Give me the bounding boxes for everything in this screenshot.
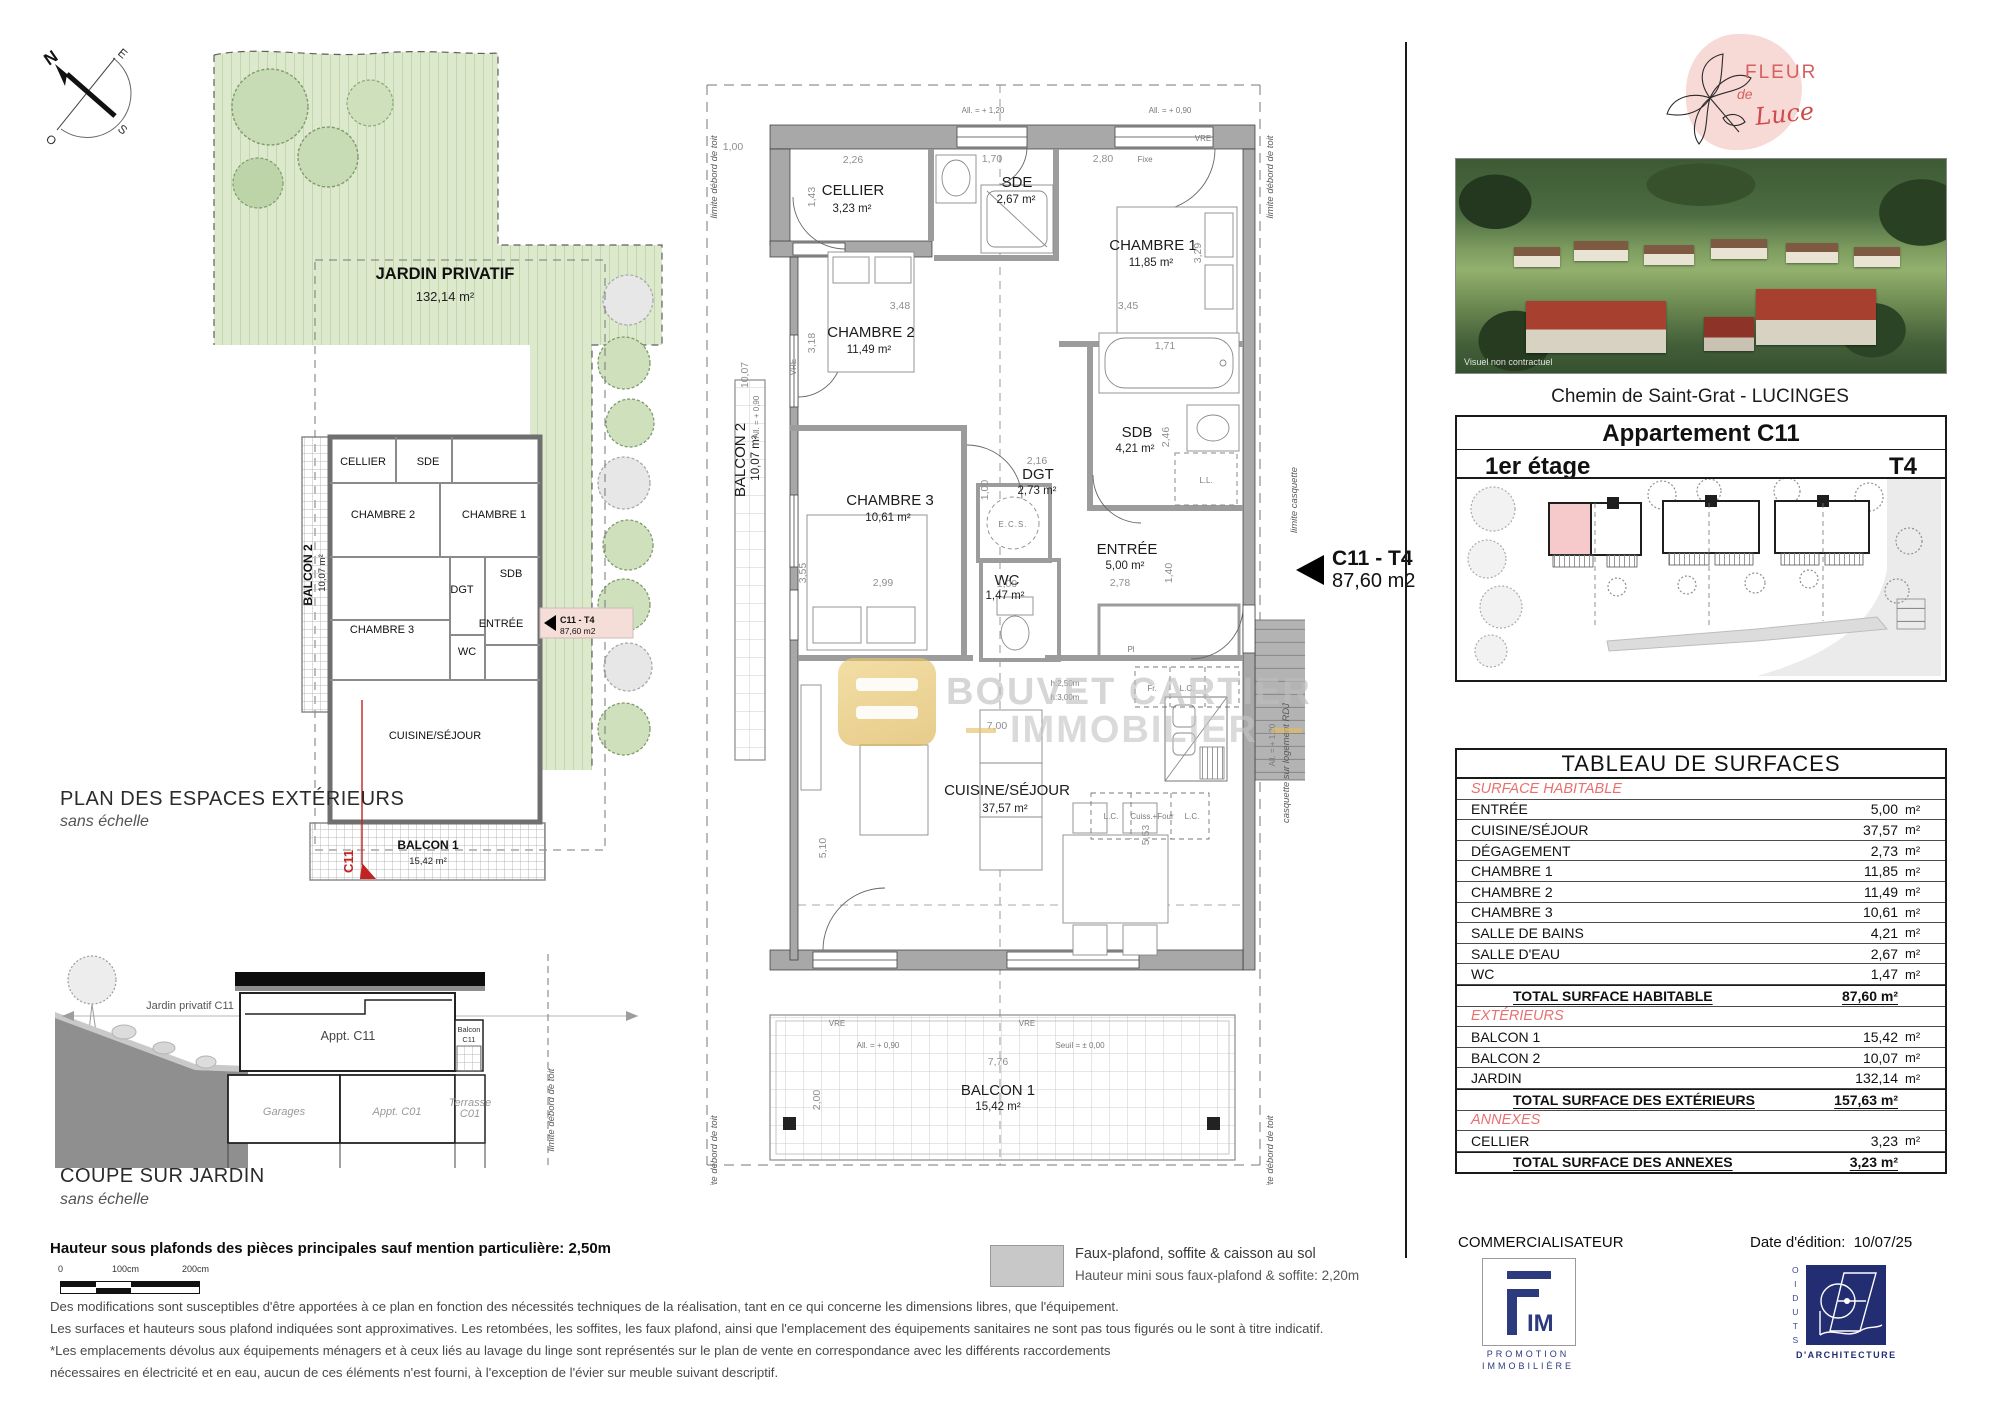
photo-disclaimer: Visuel non contractuel (1464, 357, 1552, 367)
legend-swatch (990, 1245, 1064, 1287)
fim-logo-subtitle: PROMOTION IMMOBILIÈRE (1470, 1348, 1586, 1372)
svg-text:DGT: DGT (450, 584, 474, 596)
svg-text:37,57 m²: 37,57 m² (982, 803, 1028, 815)
svg-text:CELLIER: CELLIER (340, 456, 386, 468)
svg-text:CHAMBRE 1: CHAMBRE 1 (1109, 237, 1197, 254)
project-address: Chemin de Saint-Grat - LUCINGES (1455, 386, 1945, 408)
svg-text:BALCON 1: BALCON 1 (397, 838, 459, 852)
svg-text:3,18: 3,18 (806, 333, 818, 354)
unit-callout-title: C11 - T4 (1332, 548, 1415, 570)
fim-logo: IM (1482, 1258, 1576, 1346)
svg-text:1,47 m²: 1,47 m² (986, 590, 1025, 602)
unit-callout-area: 87,60 m2 (1332, 570, 1415, 592)
svg-text:3,23 m²: 3,23 m² (833, 203, 872, 215)
svg-text:5,10: 5,10 (817, 838, 829, 859)
scale-100: 100cm (112, 1264, 139, 1274)
svg-text:WC: WC (458, 646, 476, 658)
table-row: BALCON 115,42m² (1457, 1027, 1945, 1048)
svg-text:3,55: 3,55 (797, 563, 809, 584)
table-section: ANNEXES (1457, 1111, 1945, 1132)
brand-luce: Luce (1754, 97, 1816, 131)
apartment-info-box: Appartement C11 1er étage T4 (1455, 415, 1947, 481)
table-total-row: TOTAL SURFACE HABITABLE87,60 m² (1457, 985, 1945, 1007)
compass-icon: N E S O (15, 28, 155, 153)
table-row: SALLE DE BAINS4,21m² (1457, 923, 1945, 944)
svg-text:All. = + 1,20: All. = + 1,20 (1268, 723, 1277, 766)
edition-date: Date d'édition: 10/07/25 (1750, 1234, 1912, 1251)
svg-text:C11: C11 (341, 850, 356, 873)
svg-text:VRE: VRE (829, 1019, 845, 1028)
site-plan-box (1455, 477, 1947, 682)
table-row: CHAMBRE 310,61m² (1457, 903, 1945, 924)
svg-text:limite débord de toit: limite débord de toit (1265, 135, 1276, 218)
svg-text:10,61 m²: 10,61 m² (865, 512, 911, 524)
studio-vertical-label: OIDUTS (1792, 1265, 1799, 1345)
plan-sheet: N E S O (0, 0, 2000, 1413)
svg-text:VRE: VRE (1019, 1019, 1035, 1028)
svg-text:2,78: 2,78 (1110, 577, 1131, 589)
brand-fleur: FLEUR (1745, 62, 1817, 84)
svg-text:132,14 m²: 132,14 m² (416, 289, 475, 304)
svg-text:h:2,50m: h:2,50m (1051, 679, 1080, 688)
svg-text:IM: IM (1527, 1310, 1554, 1337)
project-photo: Visuel non contractuel (1455, 158, 1947, 374)
svg-text:3,45: 3,45 (1118, 300, 1139, 312)
svg-text:1,43: 1,43 (806, 187, 818, 208)
svg-text:limite débord de toit: limite débord de toit (709, 135, 720, 218)
svg-text:10,07 m²: 10,07 m² (317, 554, 328, 592)
exterior-spaces-plan: CELLIER SDE CHAMBRE 2 CHAMBRE 1 SDB DGT … (200, 45, 670, 905)
svg-text:3,48: 3,48 (890, 300, 911, 312)
svg-text:7,76: 7,76 (988, 1056, 1009, 1068)
svg-text:Fixe: Fixe (1137, 155, 1153, 164)
exterior-plan-caption-sub: sans échelle (60, 813, 149, 831)
svg-text:limite débord de toit: limite débord de toit (709, 1115, 720, 1185)
svg-text:All. = + 1,20: All. = + 1,20 (962, 106, 1005, 115)
svg-text:BALCON 2: BALCON 2 (301, 544, 315, 606)
svg-text:2,80: 2,80 (1093, 153, 1114, 165)
table-row: CELLIER3,23m² (1457, 1131, 1945, 1152)
svg-text:2,73 m²: 2,73 m² (1018, 485, 1057, 497)
legend-line2: Hauteur mini sous faux-plafond & soffite… (1075, 1268, 1359, 1283)
garden-trees-column (598, 275, 654, 755)
svg-text:1,00: 1,00 (979, 480, 991, 501)
svg-text:BALCON 2: BALCON 2 (732, 423, 749, 497)
apartment-outline (302, 437, 545, 880)
svg-text:C11: C11 (462, 1035, 475, 1044)
svg-text:E: E (115, 46, 130, 62)
svg-text:Jardin privatif C11: Jardin privatif C11 (146, 1000, 234, 1012)
svg-text:All. = + 0,90: All. = + 0,90 (752, 395, 761, 438)
table-row: BALCON 210,07m² (1457, 1048, 1945, 1069)
scale-200: 200cm (182, 1264, 209, 1274)
svg-text:limite débord de toit: limite débord de toit (1265, 1115, 1276, 1185)
svg-text:S: S (115, 122, 130, 138)
svg-text:CELLIER: CELLIER (822, 182, 885, 199)
ceiling-height-note: Hauteur sous plafonds des pièces princip… (50, 1240, 611, 1257)
svg-text:All. = + 0,90: All. = + 0,90 (1149, 106, 1192, 115)
svg-text:Appt. C01: Appt. C01 (372, 1106, 422, 1118)
svg-text:Balcon: Balcon (458, 1025, 481, 1034)
svg-text:CHAMBRE 3: CHAMBRE 3 (350, 624, 414, 636)
legend-line1: Faux-plafond, soffite & caisson au sol (1075, 1246, 1316, 1262)
svg-text:5,53: 5,53 (1140, 825, 1152, 846)
surfaces-table: TABLEAU DE SURFACES SURFACE HABITABLE EN… (1455, 748, 1947, 1174)
svg-text:CHAMBRE 1: CHAMBRE 1 (462, 509, 526, 521)
svg-text:Appt. C11: Appt. C11 (321, 1029, 376, 1043)
svg-text:Cuiss.+Four: Cuiss.+Four (1130, 812, 1174, 821)
table-section: EXTÉRIEURS (1457, 1007, 1945, 1028)
svg-text:limite casquette: limite casquette (1289, 467, 1300, 533)
svg-text:L.C.: L.C. (1180, 684, 1195, 693)
svg-text:VRE: VRE (1195, 134, 1211, 143)
svg-text:10,07 m²: 10,07 m² (750, 435, 762, 481)
svg-text:C11 - T4: C11 - T4 (560, 615, 595, 625)
table-row: CUISINE/SÉJOUR37,57m² (1457, 820, 1945, 841)
svg-text:SDB: SDB (500, 568, 523, 580)
svg-text:CUISINE/SÉJOUR: CUISINE/SÉJOUR (389, 729, 481, 742)
surfaces-table-title: TABLEAU DE SURFACES (1457, 750, 1945, 779)
highlighted-unit-c11 (1549, 503, 1591, 555)
exterior-plan-caption: PLAN DES ESPACES EXTÉRIEURS (60, 788, 404, 811)
main-floor-plan: limite débord de toit limite débord de t… (695, 45, 1305, 1185)
apartment-title: Appartement C11 (1457, 420, 1945, 448)
svg-text:SDE: SDE (1002, 174, 1033, 191)
studio-bottom-label: D'ARCHITECTURE (1796, 1350, 1896, 1360)
svg-text:2,00: 2,00 (811, 1090, 823, 1111)
svg-text:87,60 m2: 87,60 m2 (560, 626, 596, 636)
svg-text:2,26: 2,26 (843, 154, 864, 166)
svg-text:L.C.: L.C. (1185, 812, 1200, 821)
svg-text:CHAMBRE 2: CHAMBRE 2 (827, 324, 915, 341)
svg-text:7,00: 7,00 (987, 720, 1008, 732)
svg-text:BALCON 1: BALCON 1 (961, 1082, 1035, 1099)
table-section: SURFACE HABITABLE (1457, 779, 1945, 800)
svg-text:L.C.: L.C. (1104, 812, 1119, 821)
svg-text:O: O (43, 132, 59, 149)
section-building: Appt. C11 Balcon C11 Garages Appt. C01 T… (228, 972, 491, 1168)
svg-text:SDB: SDB (1122, 424, 1153, 441)
scale-0: 0 (58, 1264, 63, 1274)
svg-text:SDE: SDE (417, 456, 440, 468)
table-row: CHAMBRE 111,85m² (1457, 861, 1945, 882)
furniture (801, 155, 1239, 955)
svg-text:casquette sur logement RDJ: casquette sur logement RDJ (1281, 703, 1292, 823)
commercialisateur-label: COMMERCIALISATEUR (1458, 1234, 1624, 1251)
svg-text:15,42 m²: 15,42 m² (975, 1101, 1021, 1113)
scale-bar (60, 1281, 200, 1294)
svg-text:Pl: Pl (1127, 645, 1134, 654)
svg-text:2,16: 2,16 (1027, 455, 1048, 467)
table-row: CHAMBRE 211,49m² (1457, 882, 1945, 903)
garden-section-drawing: Jardin privatif C11 Appt. C11 Balcon C11… (40, 950, 660, 1175)
site-plan-drawing (1457, 479, 1941, 676)
svg-text:VRE: VRE (789, 359, 798, 375)
table-total-row: TOTAL SURFACE DES ANNEXES3,23 m² (1457, 1152, 1945, 1173)
svg-text:1,09: 1,09 (997, 578, 1018, 590)
svg-text:CHAMBRE 2: CHAMBRE 2 (351, 509, 415, 521)
svg-text:1,70: 1,70 (982, 153, 1003, 165)
svg-text:limite débord de toit: limite débord de toit (546, 1068, 557, 1151)
svg-text:ENTRÉE: ENTRÉE (1097, 541, 1158, 558)
brand-de: de (1737, 86, 1753, 102)
svg-text:Garages: Garages (263, 1106, 306, 1118)
table-row: ENTRÉE5,00m² (1457, 800, 1945, 821)
arrow-left-icon (1296, 555, 1324, 585)
svg-text:L.L.: L.L. (1199, 476, 1212, 485)
svg-text:JARDIN PRIVATIF: JARDIN PRIVATIF (376, 265, 515, 283)
svg-text:4,21 m²: 4,21 m² (1116, 443, 1155, 455)
svg-text:3,29: 3,29 (1192, 243, 1204, 264)
svg-text:5,00 m²: 5,00 m² (1106, 560, 1145, 572)
svg-text:1,71: 1,71 (1155, 340, 1176, 352)
coupe-caption-sub: sans échelle (60, 1191, 149, 1209)
table-row: JARDIN132,14m² (1457, 1068, 1945, 1089)
vertical-divider (1405, 42, 1407, 1258)
studio-architecture-logo (1806, 1265, 1886, 1345)
svg-text:DGT: DGT (1022, 466, 1054, 483)
svg-text:h:3,00m: h:3,00m (1051, 693, 1080, 702)
svg-text:2,67 m²: 2,67 m² (997, 194, 1036, 206)
svg-text:1,40: 1,40 (1163, 563, 1175, 584)
svg-text:Seuil = ± 0,00: Seuil = ± 0,00 (1055, 1041, 1105, 1050)
svg-text:10,07: 10,07 (739, 362, 751, 388)
coupe-caption: COUPE SUR JARDIN (60, 1165, 265, 1188)
svg-text:E.C.S.: E.C.S. (998, 520, 1027, 529)
svg-text:N: N (40, 47, 61, 70)
svg-text:2,46: 2,46 (1160, 427, 1172, 448)
svg-text:11,85 m²: 11,85 m² (1129, 257, 1174, 269)
c11-entrance-marker: C11 - T4 87,60 m2 (540, 608, 633, 638)
svg-text:11,49 m²: 11,49 m² (847, 344, 892, 356)
table-total-row: TOTAL SURFACE DES EXTÉRIEURS157,63 m² (1457, 1089, 1945, 1111)
svg-text:Fr.: Fr. (1147, 684, 1156, 693)
svg-text:All. = + 0,90: All. = + 0,90 (857, 1041, 900, 1050)
svg-text:15,42 m²: 15,42 m² (409, 856, 447, 867)
svg-text:CUISINE/SÉJOUR: CUISINE/SÉJOUR (944, 782, 1070, 799)
table-row: SALLE D'EAU2,67m² (1457, 944, 1945, 965)
svg-text:C01: C01 (460, 1108, 480, 1120)
table-row: WC1,47m² (1457, 964, 1945, 985)
table-row: DÉGAGEMENT2,73m² (1457, 841, 1945, 862)
unit-callout: C11 - T4 87,60 m2 (1296, 548, 1415, 592)
svg-text:1,00: 1,00 (723, 141, 744, 153)
disclaimer-paragraph: Des modifications sont susceptibles d'êt… (50, 1296, 1323, 1384)
svg-text:2,99: 2,99 (873, 577, 894, 589)
svg-text:ENTRÉE: ENTRÉE (479, 617, 524, 630)
svg-text:CHAMBRE 3: CHAMBRE 3 (846, 492, 934, 509)
